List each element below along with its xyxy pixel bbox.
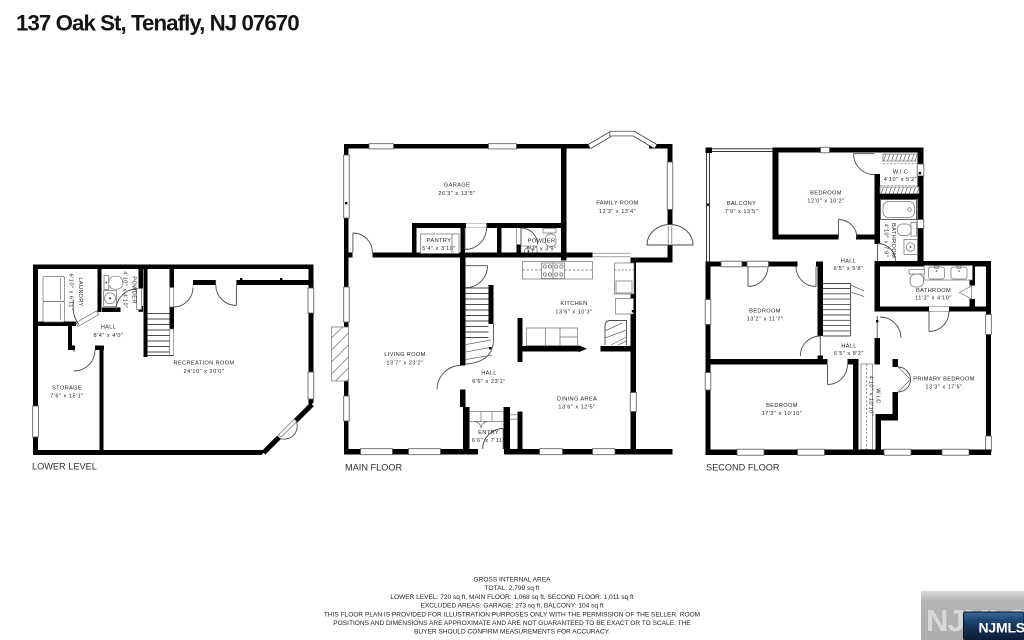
svg-text:17'3" x 10'10": 17'3" x 10'10" [762, 411, 803, 417]
svg-text:7'6" x 15'1": 7'6" x 15'1" [50, 394, 84, 400]
svg-text:BEDROOM: BEDROOM [749, 309, 781, 315]
svg-text:BALCONY: BALCONY [727, 201, 756, 207]
svg-text:13'2" x 11'7": 13'2" x 11'7" [747, 317, 784, 323]
svg-text:FAMILY ROOM: FAMILY ROOM [596, 201, 639, 207]
svg-text:13'7" x 23'2": 13'7" x 23'2" [386, 361, 423, 367]
svg-text:GARAGE: GARAGE [444, 183, 470, 189]
svg-text:BEDROOM: BEDROOM [766, 403, 798, 409]
svg-text:EXCLUDED AREAS: GARAGE: 273 sq: EXCLUDED AREAS: GARAGE: 273 sq ft, BALCO… [420, 603, 603, 610]
svg-text:NJMLS: NJMLS [979, 620, 1024, 636]
svg-text:LIVING ROOM: LIVING ROOM [384, 352, 425, 358]
svg-text:W.I.C: W.I.C [875, 388, 881, 404]
svg-text:5'4" x 3'9": 5'4" x 3'9" [527, 247, 557, 253]
svg-text:LOWER LEVEL: 720 sq ft, MAIN F: LOWER LEVEL: 720 sq ft, MAIN FLOOR: 1,06… [390, 594, 633, 601]
svg-text:SECOND FLOOR: SECOND FLOOR [706, 463, 780, 473]
svg-text:RECREATION ROOM: RECREATION ROOM [174, 361, 235, 367]
svg-text:13'6" x 10'3": 13'6" x 10'3" [555, 310, 592, 316]
svg-text:6'10" x 6'11": 6'10" x 6'11" [68, 274, 74, 311]
svg-text:PANTRY: PANTRY [427, 238, 451, 244]
svg-text:11'3" x 4'10": 11'3" x 4'10" [915, 296, 952, 302]
svg-text:4'10" x 5'2": 4'10" x 5'2" [884, 177, 918, 183]
svg-text:MAIN FLOOR: MAIN FLOOR [345, 463, 403, 473]
svg-text:STORAGE: STORAGE [52, 386, 82, 392]
svg-text:BATHROOM: BATHROOM [916, 288, 951, 294]
svg-text:8'4" x 4'0": 8'4" x 4'0" [94, 333, 124, 339]
svg-text:POSITIONS AND DIMENSIONS ARE A: POSITIONS AND DIMENSIONS ARE APPROXIMATE… [333, 620, 691, 627]
svg-text:12'0" x 10'2": 12'0" x 10'2" [807, 199, 844, 205]
svg-text:13'3" x 17'5": 13'3" x 17'5" [925, 385, 962, 391]
svg-text:POWDER: POWDER [528, 239, 556, 245]
svg-text:4'10" x 4'10": 4'10" x 4'10" [122, 271, 128, 308]
svg-text:W.I.C: W.I.C [893, 170, 909, 176]
svg-text:HALL: HALL [841, 259, 857, 265]
svg-text:POWDER: POWDER [131, 276, 137, 304]
svg-text:PRIMARY BEDROOM: PRIMARY BEDROOM [913, 377, 974, 383]
svg-text:4'10" x 7'9": 4'10" x 7'9" [883, 224, 889, 258]
svg-text:BEDROOM: BEDROOM [810, 191, 842, 197]
svg-text:137 Oak St, Tenafly, NJ 07670: 137 Oak St, Tenafly, NJ 07670 [16, 10, 299, 35]
svg-text:5'4" x 3'10": 5'4" x 3'10" [422, 246, 456, 252]
svg-text:BUYER SHOULD CONFIRM MEASUREME: BUYER SHOULD CONFIRM MEASUREMENTS FOR AC… [414, 629, 610, 636]
svg-text:LAUNDRY: LAUNDRY [77, 277, 83, 306]
svg-text:ENTRY: ENTRY [478, 430, 499, 436]
svg-text:7'9" x 13'5": 7'9" x 13'5" [725, 209, 759, 215]
svg-text:HALL: HALL [101, 325, 117, 331]
svg-text:6'6" x 23'1": 6'6" x 23'1" [472, 379, 506, 385]
svg-text:6'5" x 8'2": 6'5" x 8'2" [834, 351, 864, 357]
svg-text:THIS FLOOR PLAN IS PROVIDED FO: THIS FLOOR PLAN IS PROVIDED FOR ILLUSTRA… [324, 611, 700, 618]
svg-text:LOWER LEVEL: LOWER LEVEL [32, 462, 97, 472]
svg-text:4'10" x 10'10": 4'10" x 10'10" [868, 376, 874, 417]
svg-text:13'6" x 12'5": 13'6" x 12'5" [558, 405, 595, 411]
svg-text:26'3" x 13'5": 26'3" x 13'5" [438, 191, 475, 197]
svg-text:KITCHEN: KITCHEN [560, 301, 587, 307]
svg-text:12'3" x 13'4": 12'3" x 13'4" [599, 209, 636, 215]
svg-text:6'6" x 7'11": 6'6" x 7'11" [472, 438, 505, 444]
svg-text:BATHROOM: BATHROOM [890, 223, 896, 258]
svg-text:DINING AREA: DINING AREA [557, 397, 597, 403]
svg-text:GROSS INTERNAL AREA: GROSS INTERNAL AREA [474, 577, 552, 584]
svg-text:HALL: HALL [481, 371, 497, 377]
svg-text:24'10" x 20'0": 24'10" x 20'0" [184, 369, 225, 375]
svg-text:TOTAL: 2,799 sq ft: TOTAL: 2,799 sq ft [485, 585, 540, 592]
svg-text:6'5" x 5'8": 6'5" x 5'8" [834, 266, 864, 272]
svg-text:HALL: HALL [841, 344, 857, 350]
